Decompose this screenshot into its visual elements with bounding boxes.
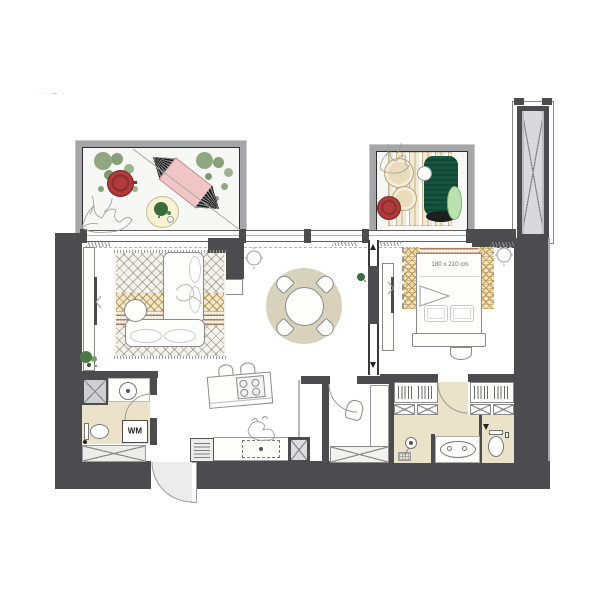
shaft-duct xyxy=(522,111,544,234)
window-band xyxy=(82,230,473,242)
wall-bedroom-bottom xyxy=(468,374,514,382)
closet-hanging xyxy=(494,386,510,399)
bedroom-tv-screen xyxy=(391,277,394,313)
flower-dish xyxy=(167,216,174,223)
sink-drain xyxy=(259,447,263,451)
closet xyxy=(470,382,514,403)
wall-office-left xyxy=(322,376,329,465)
sliding-door-pocket xyxy=(368,266,379,324)
lounge-pillow xyxy=(417,166,432,181)
basin-drain xyxy=(126,389,130,393)
wall-bottom-right xyxy=(197,461,550,489)
vanity-basin xyxy=(440,441,476,458)
plant-cluster xyxy=(94,152,112,170)
green-cushion xyxy=(447,186,462,220)
toilet-tank xyxy=(84,423,89,440)
entry-door-leaf xyxy=(191,462,197,503)
storage-hatch xyxy=(330,446,389,463)
shelf-box xyxy=(394,404,415,415)
rug-fringe xyxy=(114,356,226,359)
sofa-back-cushion xyxy=(189,286,201,313)
kitchen-divider-line xyxy=(298,380,300,437)
pillow xyxy=(424,305,448,322)
wall-bathroom-left-side xyxy=(150,371,157,395)
window-mullion xyxy=(304,229,311,243)
structural-column xyxy=(288,437,310,463)
storage-hatch xyxy=(82,445,146,462)
potted-plant xyxy=(154,202,168,216)
faucet xyxy=(462,446,467,451)
washing-machine-label: WM xyxy=(128,427,142,436)
wall-plant xyxy=(357,273,365,281)
duvet-edge xyxy=(419,276,479,277)
toilet-bowl xyxy=(488,436,504,457)
shaft-notch xyxy=(514,98,524,105)
coffee-table xyxy=(124,299,147,322)
flush-button xyxy=(505,432,509,438)
kitchen-island-group xyxy=(206,363,278,417)
red-lounge-chair xyxy=(107,170,134,197)
wall-bottom-left xyxy=(55,461,151,489)
sofa-seat-cushion xyxy=(164,329,196,343)
wall-bathroom-left-top xyxy=(80,371,158,378)
bathroom-door-strip xyxy=(438,382,468,415)
desk-chair xyxy=(344,398,365,422)
shelf-box xyxy=(417,404,438,415)
closet-hanging xyxy=(418,386,434,399)
bed-size-label: 180 x 210 cm xyxy=(430,261,471,268)
shelf-box xyxy=(493,404,514,415)
floor-plan: · ·· — · xyxy=(0,0,600,600)
entry-door-swing-area xyxy=(152,462,192,502)
wall-office-right xyxy=(389,376,394,464)
closet-hanging xyxy=(474,386,490,399)
shower-mat xyxy=(398,452,411,461)
floor-drain xyxy=(83,440,87,444)
fridge-vent xyxy=(194,442,210,458)
pillow xyxy=(450,305,474,322)
shower-drain xyxy=(409,441,413,445)
facade-edge xyxy=(548,238,550,463)
curtain-mark xyxy=(332,241,358,246)
wall-right xyxy=(514,238,548,463)
sofa-seat-cushion xyxy=(130,329,162,343)
red-chair-arm xyxy=(132,181,137,184)
shaft-notch xyxy=(542,98,552,105)
vanity-stool xyxy=(450,347,472,360)
entry-door-swing-arc xyxy=(152,462,192,502)
sofa-back-cushion xyxy=(189,256,201,283)
toilet-tank xyxy=(489,430,503,435)
cream-pouf xyxy=(384,158,414,188)
floor-plant xyxy=(80,351,92,363)
red-side-table xyxy=(377,196,401,220)
shaft xyxy=(512,101,554,244)
washing-machine: WM xyxy=(122,420,148,443)
desk xyxy=(370,385,389,447)
tv-screen xyxy=(94,277,97,325)
headboard-bench xyxy=(412,333,486,347)
shower-shaft xyxy=(82,378,108,405)
closet-hanging xyxy=(398,386,414,399)
shelf-box xyxy=(470,404,491,415)
wall-bathroom-left-side xyxy=(150,418,157,445)
kitchen-island xyxy=(207,371,274,408)
closet xyxy=(394,382,438,403)
corner-marks: · ·· — · xyxy=(36,90,84,96)
pendant-lamp-icon xyxy=(245,247,263,269)
dining-table xyxy=(285,287,324,326)
bed: 180 x 210 cm xyxy=(416,253,482,335)
wall-left xyxy=(55,233,82,463)
fridge xyxy=(190,438,214,462)
faucet xyxy=(447,446,452,451)
toilet-bowl xyxy=(90,424,109,439)
